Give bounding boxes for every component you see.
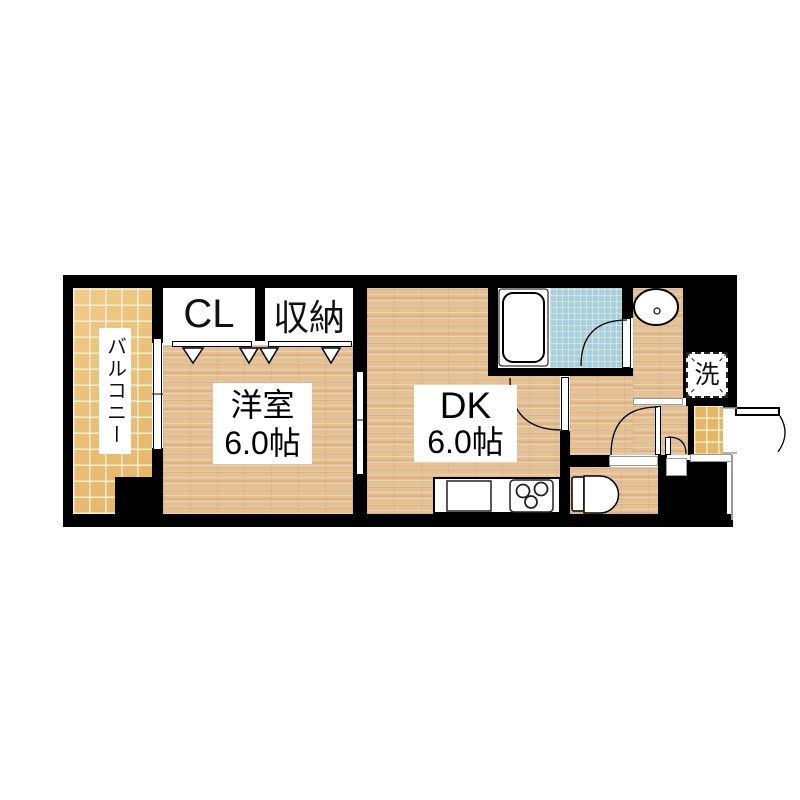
bathtub-zone bbox=[498, 288, 550, 368]
small-door-leaf bbox=[665, 437, 671, 455]
toilet-threshold bbox=[609, 456, 658, 466]
toilet-door-leaf bbox=[655, 406, 661, 455]
wall-bathtub-west bbox=[488, 287, 498, 375]
storage-track bbox=[268, 341, 352, 347]
dk-size: 6.0帖 bbox=[427, 424, 504, 461]
wall-dk-hall bbox=[560, 431, 570, 514]
dk-name: DK bbox=[440, 387, 491, 424]
balcony-label-box: バルコニー bbox=[99, 328, 131, 454]
wall-toilet-north bbox=[566, 455, 610, 467]
entrance-step bbox=[690, 454, 732, 462]
hallway-floor-east bbox=[633, 405, 693, 455]
dk-label-box: DK 6.0帖 bbox=[414, 385, 517, 462]
toilet-room-floor bbox=[567, 467, 658, 514]
window bbox=[153, 338, 162, 450]
shoe-cabinet bbox=[666, 458, 687, 476]
wall-top bbox=[63, 275, 737, 288]
laundry-label: 洗 bbox=[693, 363, 720, 388]
western-room-name: 洋室 bbox=[230, 386, 294, 424]
closet-track bbox=[172, 341, 252, 347]
wall-bath-south bbox=[488, 368, 633, 376]
wall-balcony-corner-block bbox=[115, 477, 163, 514]
wall-bath-east bbox=[622, 287, 633, 318]
washbasin-threshold bbox=[633, 398, 683, 405]
western-room-size: 6.0帖 bbox=[224, 424, 301, 462]
entrance-door-arc bbox=[778, 416, 785, 452]
closet-label: CL bbox=[183, 292, 234, 337]
storage-label: 収納 bbox=[273, 289, 345, 341]
wall-bottom bbox=[63, 514, 733, 527]
laundry-box: 洗 bbox=[686, 352, 728, 398]
wall-left bbox=[63, 275, 73, 527]
bath-door-leaf bbox=[622, 318, 631, 368]
floor-plan: CL 収納 bbox=[0, 0, 800, 800]
entrance-door-leaf bbox=[735, 407, 780, 416]
wall-balcony-upper bbox=[152, 287, 163, 343]
wall-ne-block bbox=[683, 287, 727, 355]
washbasin-room-floor bbox=[633, 288, 683, 398]
slab-edge-line bbox=[731, 455, 733, 520]
wall-closet-divider bbox=[255, 287, 265, 341]
closet-box: CL bbox=[163, 288, 255, 341]
balcony-label: バルコニー bbox=[101, 336, 130, 446]
bathroom-floor bbox=[550, 288, 622, 368]
western-room-label-box: 洋室 6.0帖 bbox=[213, 383, 312, 464]
hallway-floor bbox=[570, 375, 633, 455]
kitchen-counter bbox=[433, 477, 561, 514]
wall-entrance-west bbox=[688, 404, 694, 455]
dk-door-leaf bbox=[561, 377, 569, 431]
sliding-door bbox=[356, 371, 364, 475]
storage-box: 収納 bbox=[265, 288, 353, 341]
